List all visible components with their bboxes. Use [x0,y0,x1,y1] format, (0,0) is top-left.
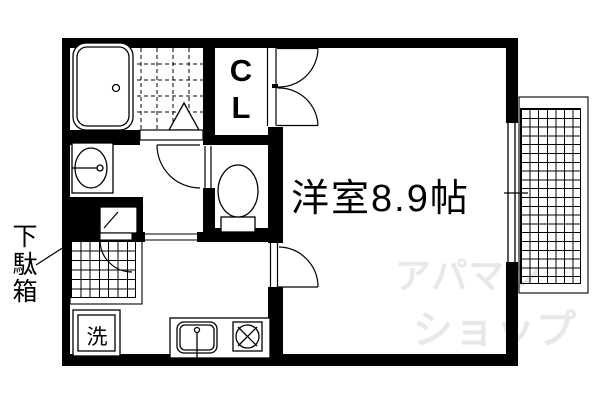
bath-tile-floor [137,48,203,130]
closet-label-c: C [227,55,255,86]
wall-above-shoe-cabinet [62,197,137,207]
main-room-label: 洋室8.9帖 [291,167,470,222]
bath-threshold-step [140,130,203,140]
closet-door-arc-top [278,49,319,88]
balcony-outline [519,97,588,293]
toilet-door-swing-arc [157,145,200,188]
wall-right-upper [506,38,518,123]
main-room-door-swing-arc [279,247,318,287]
closet-door-arc-bottom [278,88,319,126]
washroom-opening [145,234,197,240]
shoe-cabinet-leader-line [36,247,64,265]
entrance-door-swing-arc [100,240,132,272]
wall-toilet-mainroom [268,127,283,243]
wall-entrance-block [62,207,100,240]
wall-post-right-of-opening [197,232,203,242]
bathtub-drain [113,85,120,92]
closet-label-l: L [227,92,255,123]
washbasin-faucet [97,165,103,171]
wall-entrance-post [137,197,143,242]
shoe-cabinet [100,207,137,233]
main-room-door [271,243,319,287]
toilet-bowl [218,165,258,217]
toilet [218,165,258,232]
sink-faucet [195,328,200,333]
toilet-tank [221,217,255,232]
bathroom [73,43,133,130]
wall-bath-closet [203,38,215,145]
shoe-cabinet-label: 下駄箱 [11,224,39,307]
washing-machine-label: 洗 [78,321,116,351]
balcony-window [504,123,528,262]
wall-bottom [62,354,518,366]
closet-door-meeting-tick [272,84,278,88]
toilet-door [157,145,211,188]
entrance-door-leaf [100,233,132,240]
washbasin-unit [72,143,113,193]
wall-toilet-left-lower [203,188,215,230]
kitchen [170,318,270,358]
wall-top [62,38,518,48]
wall-right-lower [506,262,518,366]
floor-plan: アパマン ショップ [0,0,600,400]
bathtub-inner [77,47,129,126]
